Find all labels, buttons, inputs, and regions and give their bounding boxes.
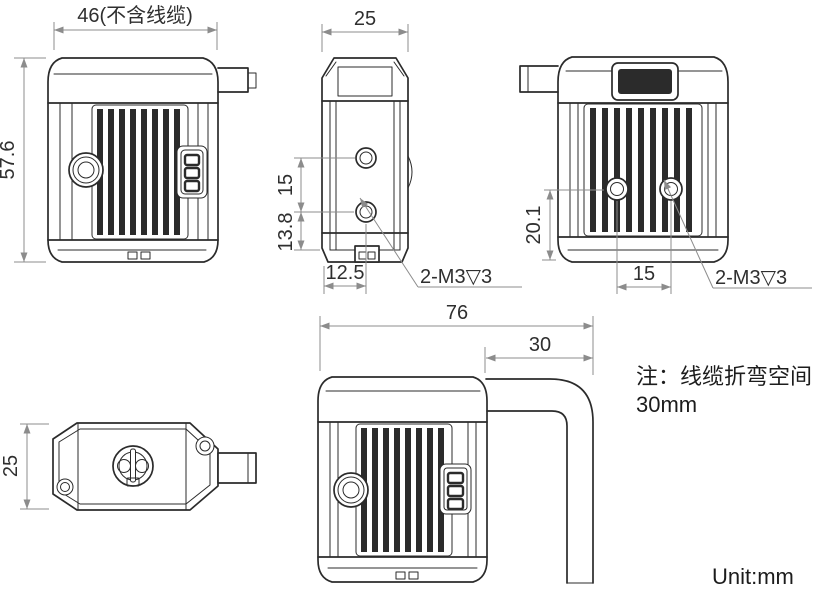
cable-outer [486,379,593,583]
led-slot [185,181,199,191]
thread-label: 2-M3▽3 [715,267,787,289]
led-slot [448,499,463,509]
dim-label-hole-offset: 13.8 [275,213,297,252]
note-block: 注：线缆折弯空间 30mm [636,364,812,417]
dim-extension [320,316,593,375]
top-view [53,423,256,510]
thread-label: 2-M3▽3 [420,266,492,288]
heatsink-fins [590,108,692,232]
cap-inner-rect [338,67,392,96]
cable-tab [218,68,248,92]
cable-tab [520,66,558,92]
side-rails [330,101,400,250]
dim-label-hole-edge: 12.5 [326,262,365,284]
side-view [322,58,412,262]
dim-label-hole-pitch: 15 [633,263,655,285]
rear-view [520,57,728,262]
heatsink-panel [92,105,188,239]
bottom-detail [128,252,137,259]
dim-label-depth: 25 [0,455,22,477]
led-slot [185,168,199,178]
cable-view-dimensions: 76 30 [320,302,593,375]
dim-label-side-width: 25 [354,8,376,30]
cable-tab-step [248,73,256,88]
dim-label-front-height: 57.6 [0,141,19,180]
note-text-line1: 注：线缆折弯空间 [636,364,812,389]
mount-hole-lower [356,202,376,222]
bottom-detail [141,252,150,259]
screw-hole [196,437,214,455]
cable-inner [487,411,567,583]
cable-view [318,377,593,583]
mount-hole-left [606,178,628,200]
lens-bar [131,449,136,482]
dim-label-hole-height: 20.1 [523,206,545,245]
dim-extension [20,424,49,509]
bottom-detail [409,572,418,579]
dim-label-overall: 76 [446,302,468,324]
top-view-dimensions: 25 [0,424,49,509]
led-slot [185,155,199,165]
heatsink-panel [356,424,452,556]
heatsink-fins [361,428,444,552]
dim-label-hole-pitch: 15 [275,174,297,196]
side-view-dimensions: 25 15 13.8 12.5 2-M3▽3 [275,8,522,294]
mount-hole-upper [356,148,376,168]
note-text-line2: 30mm [636,392,697,417]
dim-label-front-width: 46(不含线缆) [77,4,193,27]
leader-line [360,198,418,287]
screw-hole [57,479,73,495]
front-view [48,58,256,262]
connector-ring-outer [69,153,103,187]
dim-extension [294,158,355,250]
cable-tab [218,453,256,483]
top-window-glass [618,69,672,94]
drawing-canvas: 46(不含线缆) 57.6 25 15 13.8 12.5 [0,0,819,600]
connector-ring-outer [334,473,368,507]
dimension-drawing: 46(不含线缆) 57.6 25 15 13.8 12.5 [0,0,819,600]
led-slot [448,473,463,483]
unit-label: Unit:mm [712,564,794,589]
led-slot [448,486,463,496]
bottom-detail [396,572,405,579]
mount-hole-right [660,178,682,200]
dim-label-bend: 30 [529,334,551,356]
heatsink-fins [97,109,180,235]
